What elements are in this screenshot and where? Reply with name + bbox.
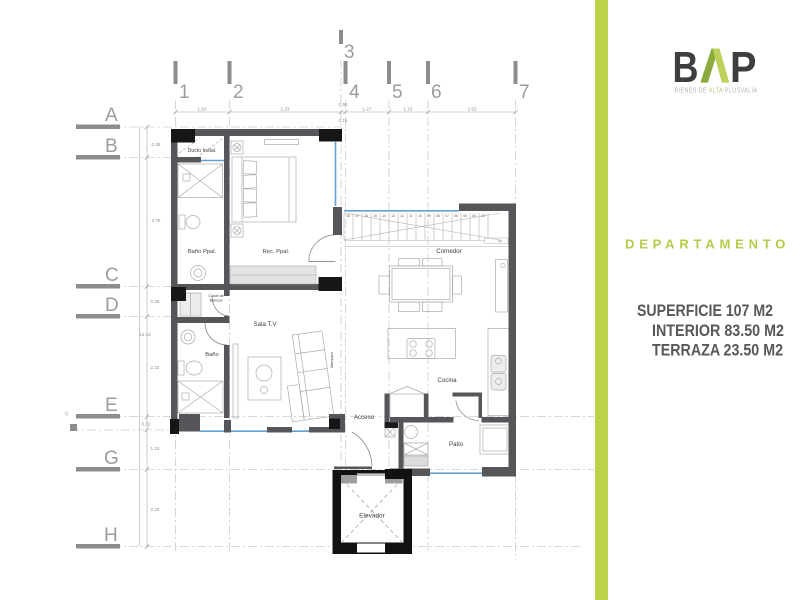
svg-text:Closet de: Closet de — [208, 294, 223, 298]
svg-text:0.95: 0.95 — [339, 102, 348, 107]
svg-text:Sala T.V: Sala T.V — [254, 321, 278, 328]
svg-text:DEPARTAMENTO: DEPARTAMENTO — [625, 237, 790, 252]
svg-text:Ducto Instal.: Ducto Instal. — [188, 148, 217, 154]
svg-text:Cocina: Cocina — [437, 377, 457, 384]
svg-text:3.75: 3.75 — [152, 218, 161, 223]
svg-text:15: 15 — [373, 214, 377, 218]
svg-text:03: 03 — [481, 214, 485, 218]
svg-text:Mampara: Mampara — [330, 352, 334, 367]
svg-text:E: E — [105, 395, 118, 416]
svg-text:17: 17 — [355, 214, 359, 218]
svg-text:Comedor: Comedor — [436, 248, 461, 255]
svg-text:1.63: 1.63 — [198, 107, 207, 112]
svg-text:0.35: 0.35 — [151, 299, 160, 304]
svg-text:5: 5 — [392, 82, 403, 103]
svg-text:10: 10 — [418, 214, 422, 218]
svg-text:09: 09 — [427, 214, 431, 218]
svg-text:3: 3 — [344, 42, 355, 63]
svg-text:Blancos: Blancos — [210, 299, 223, 303]
svg-text:1.27: 1.27 — [363, 107, 372, 112]
svg-text:2.32: 2.32 — [151, 365, 160, 370]
svg-text:2.53: 2.53 — [468, 107, 477, 112]
svg-text:04: 04 — [472, 214, 476, 218]
svg-text:A: A — [105, 105, 118, 126]
svg-text:12.15: 12.15 — [139, 332, 151, 337]
svg-text:SUPERFICIE 107 M2: SUPERFICIE 107 M2 — [637, 302, 773, 320]
svg-text:08: 08 — [436, 214, 440, 218]
svg-text:16: 16 — [346, 214, 350, 218]
svg-text:2.23: 2.23 — [281, 107, 290, 112]
svg-text:BIENES DE ALTA PLUSVALÍA: BIENES DE ALTA PLUSVALÍA — [675, 86, 758, 95]
svg-text:C: C — [105, 265, 119, 286]
svg-text:0.32: 0.32 — [142, 422, 151, 427]
svg-text:H: H — [104, 525, 118, 546]
svg-text:0.15: 0.15 — [339, 118, 348, 123]
svg-text:1.23: 1.23 — [151, 446, 160, 451]
svg-text:4: 4 — [349, 82, 360, 103]
svg-text:05: 05 — [463, 214, 467, 218]
svg-text:14: 14 — [382, 214, 386, 218]
svg-text:Baño Ppal.: Baño Ppal. — [188, 249, 217, 255]
svg-text:D: D — [105, 295, 119, 316]
svg-text:12: 12 — [400, 214, 404, 218]
svg-text:G: G — [104, 448, 119, 469]
svg-text:11: 11 — [64, 411, 69, 416]
svg-text:06: 06 — [454, 214, 458, 218]
svg-text:0.38: 0.38 — [152, 142, 161, 147]
svg-text:13: 13 — [391, 214, 395, 218]
svg-text:11: 11 — [409, 214, 413, 218]
svg-text:TERRAZA 23.50 M2: TERRAZA 23.50 M2 — [652, 342, 783, 360]
svg-text:Acceso: Acceso — [354, 414, 375, 421]
svg-text:INTERIOR 83.50 M2: INTERIOR 83.50 M2 — [652, 322, 784, 340]
svg-text:2.20: 2.20 — [151, 507, 160, 512]
svg-text:47: 47 — [498, 240, 502, 244]
svg-text:Baño: Baño — [205, 352, 219, 358]
svg-text:07: 07 — [445, 214, 449, 218]
svg-text:P: P — [730, 43, 757, 92]
svg-text:Patio: Patio — [449, 441, 464, 448]
svg-text:2: 2 — [233, 82, 244, 103]
svg-text:1.15: 1.15 — [404, 107, 413, 112]
svg-text:B: B — [673, 43, 699, 92]
svg-text:Elevador: Elevador — [359, 513, 385, 520]
svg-text:16: 16 — [364, 214, 368, 218]
svg-text:7: 7 — [519, 82, 530, 103]
svg-text:B: B — [105, 136, 118, 157]
svg-text:Rec. Ppal.: Rec. Ppal. — [263, 249, 290, 255]
svg-text:6: 6 — [431, 82, 442, 103]
svg-text:1: 1 — [179, 82, 190, 103]
